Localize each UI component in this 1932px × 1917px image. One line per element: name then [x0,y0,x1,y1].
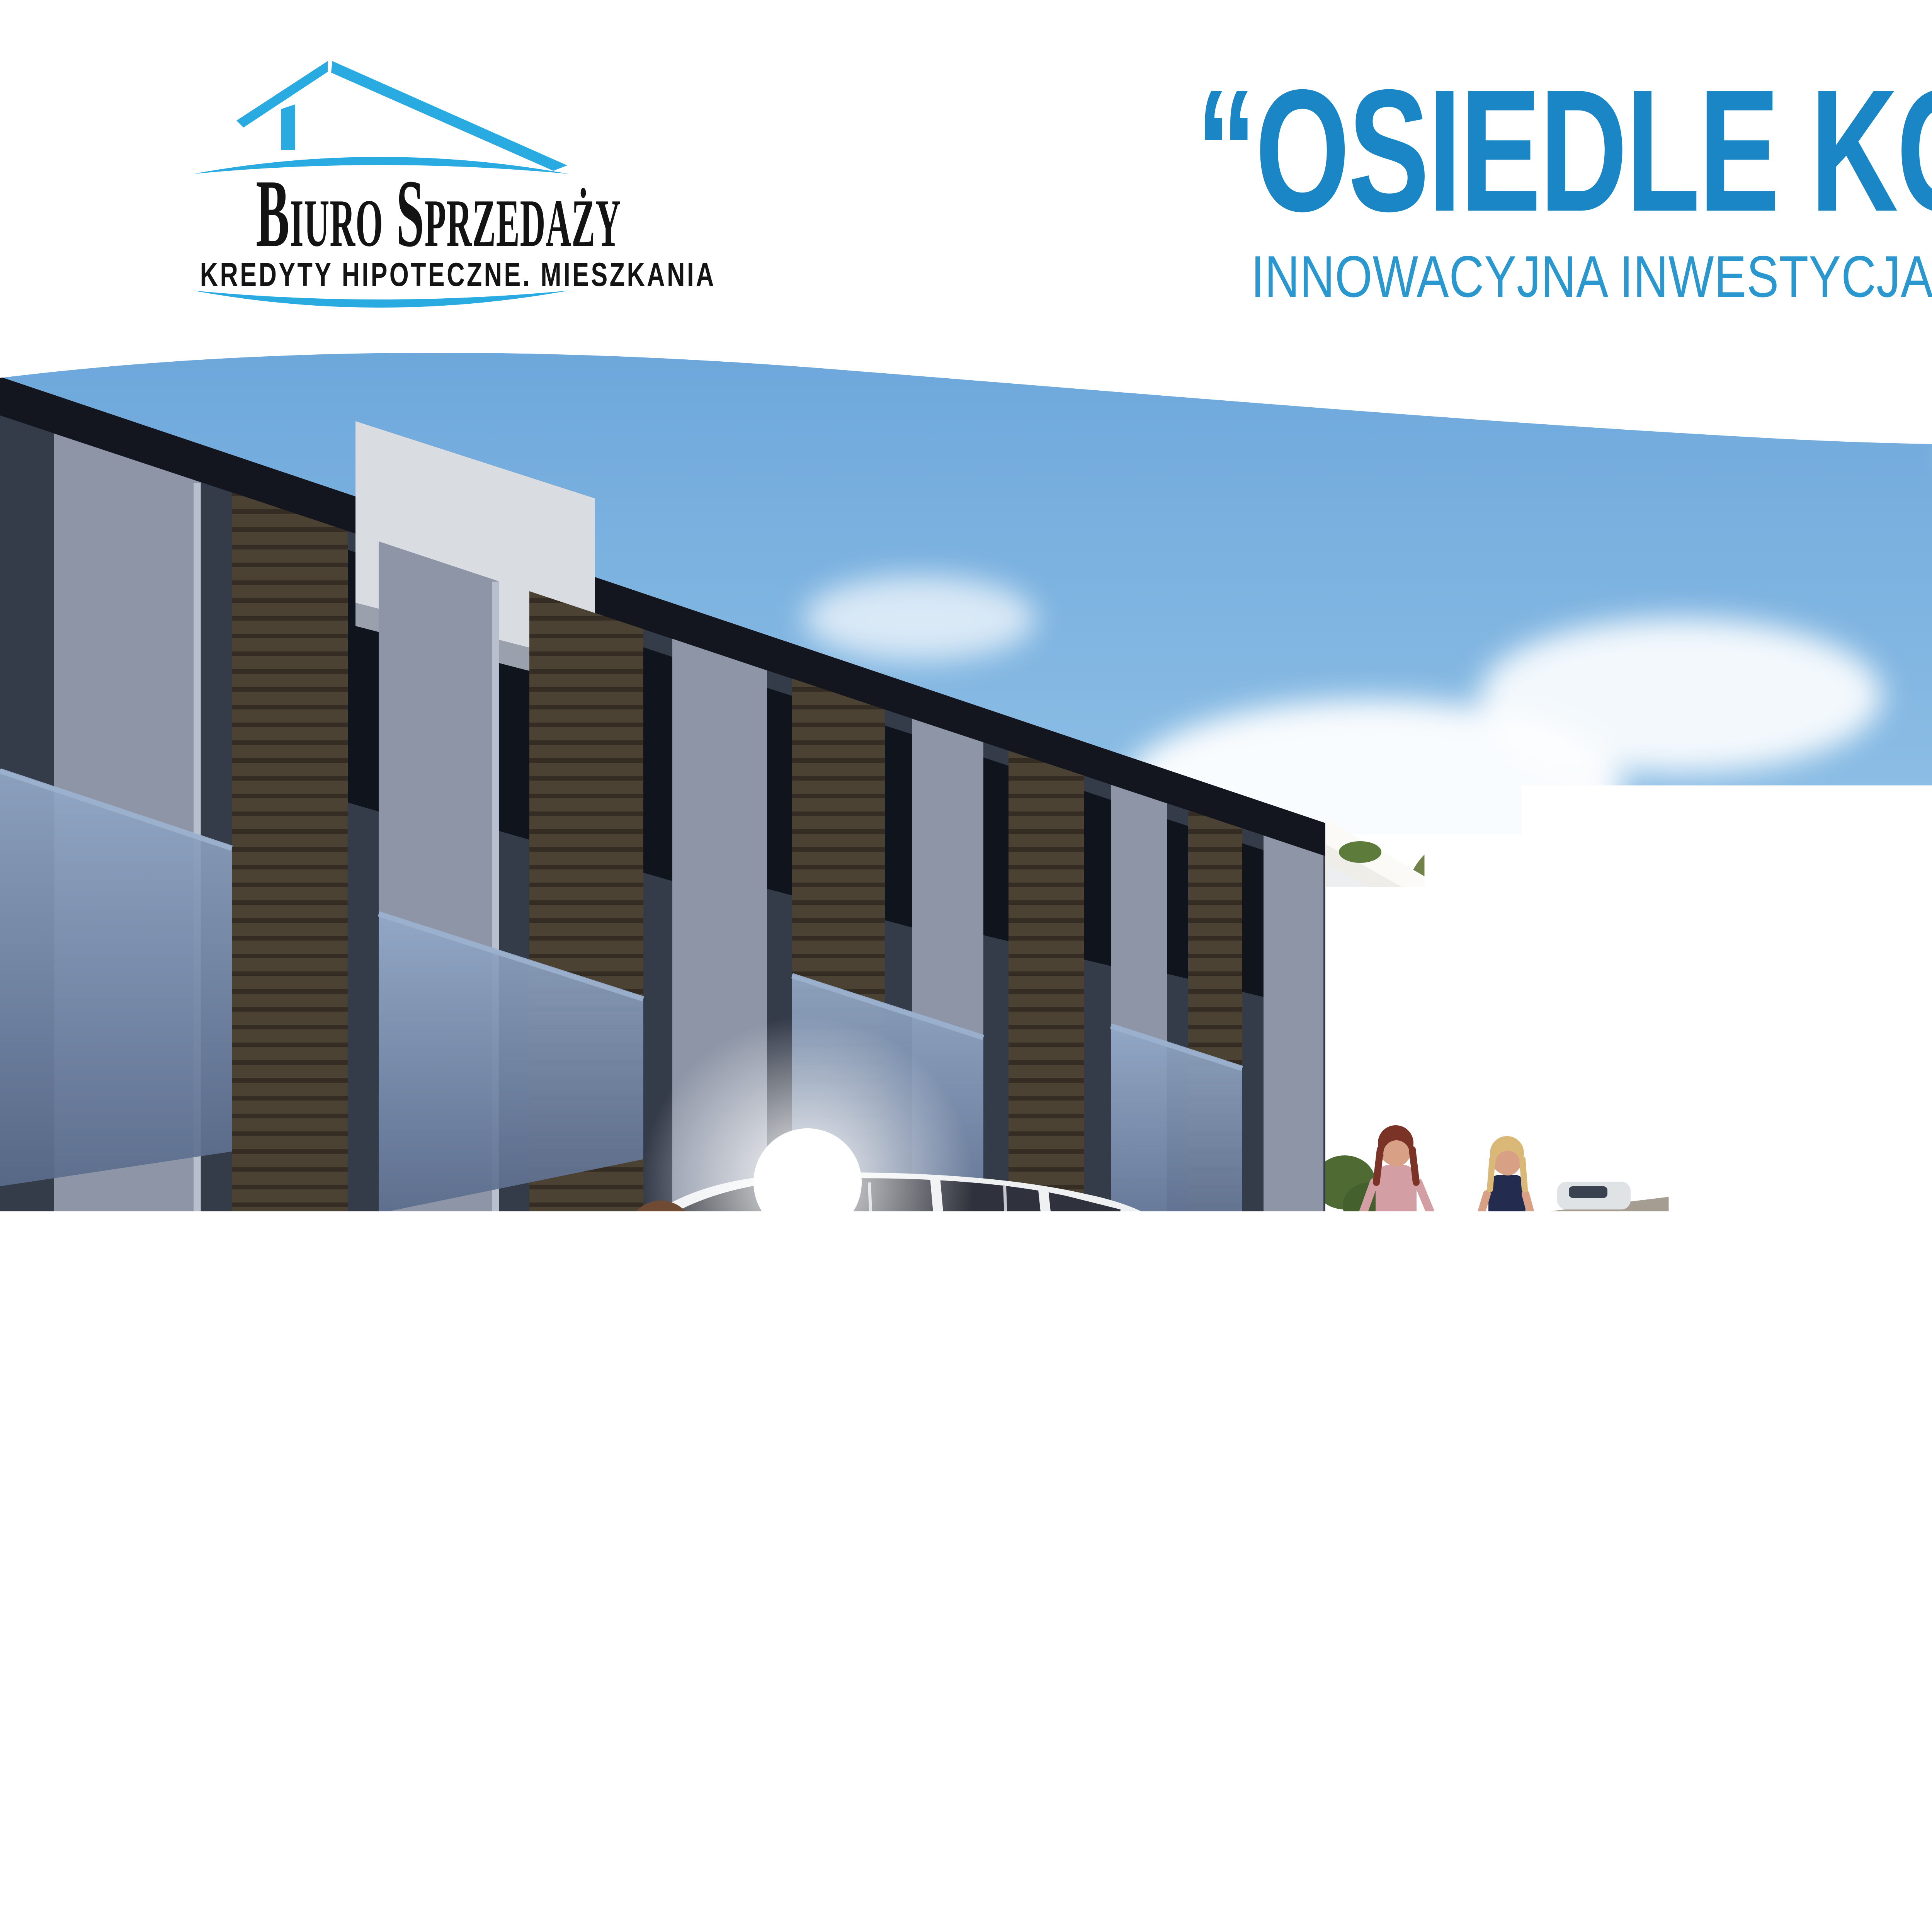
www-label: www [1605,1808,1671,1835]
description-line: domów w zabudowie szeregowej. W skład in… [1849,1252,1932,1291]
description-line: garaże. [1849,1368,1932,1407]
page-subtitle: INNOWACYJNA INWESTYCJA W RADZYMINIE [1096,247,1932,306]
logo-name: Biuro Sprzedaży [256,165,509,262]
phone-icon [101,1754,198,1891]
description-line: Osiedle „Korczaka 32” to zorganizowany k… [1849,1213,1932,1252]
description-text: Osiedle „Korczaka 32” to zorganizowany k… [1849,1213,1932,1638]
description-line: Bez względu na to, który z naszych budyn… [1849,1407,1932,1445]
description-line: rzesz, będziesz mógł cieszyć się wysokim… [1849,1445,1932,1484]
logo-tagline: KREDYTY HIPOTECZNE. MIESZKANIA [200,258,565,291]
page-title: “OSIEDLE KORCZKA 32” [1196,64,1932,238]
description-line: wyróżniają się na tle konkurencyjnych of… [1849,1600,1932,1638]
description-line: wchodzą domy 5 oraz 6 pokojowe. Do mniej… [1849,1291,1932,1329]
description-line: metrażu są przewidziane parkingi, a do w… [1849,1329,1932,1368]
description-line: przemyślany układ pomieszczeń oraz orygi… [1849,1522,1932,1561]
description-line: tem życia. Gwarantują to nowoczesne tech… [1849,1484,1932,1522]
description-line: architektura. Te cechy sprawiają, że now… [1849,1561,1932,1600]
phone-number: tel. 604 771 746 [218,1776,755,1867]
website-url: www.biurosprzedazy.com.pl [1707,1776,1932,1867]
globe-www-icon: www [1591,1755,1686,1890]
parked-car [1557,1182,1631,1209]
description-box: Osiedle „Korczaka 32” to zorganizowany k… [1808,1159,1932,1691]
